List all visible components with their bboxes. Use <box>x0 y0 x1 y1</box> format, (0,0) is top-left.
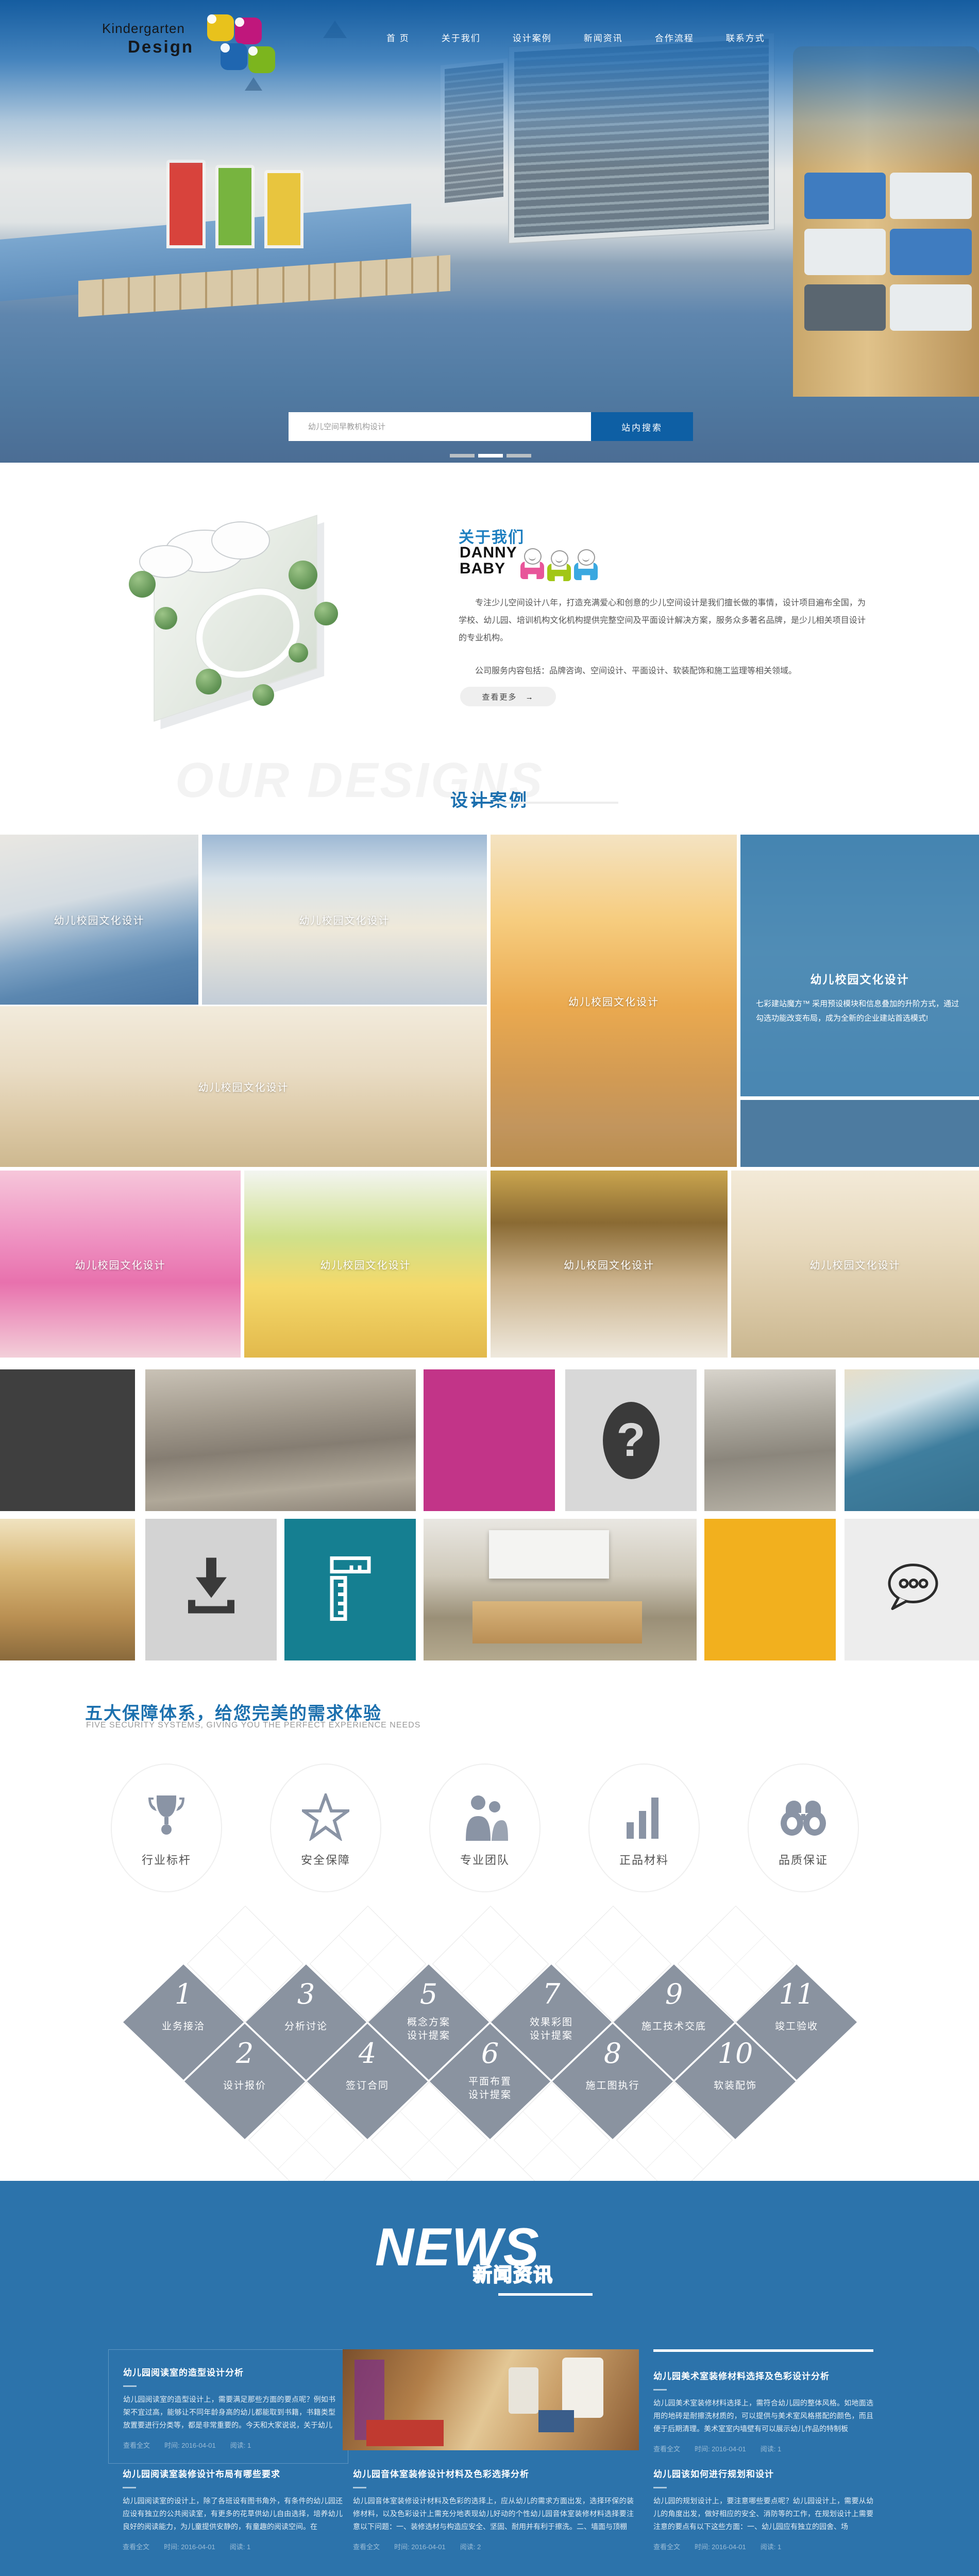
site-search: 站内搜索 <box>289 412 693 441</box>
case-caption: 幼儿校园文化设计 <box>731 1257 979 1272</box>
article-meta: 查看全文 时间: 2016-04-01 阅读: 1 <box>123 2440 335 2450</box>
cabinet-drawer <box>890 229 972 275</box>
about-paragraph-1: 专注少儿空间设计八年，打造充满爱心和创意的少儿空间设计是我们擅长做的事情，设计项… <box>459 595 866 647</box>
step-label: 效果彩图设计提案 <box>491 2016 612 2043</box>
binoculars-icon <box>779 1793 828 1843</box>
news-article-title[interactable]: 幼儿园阅读室的造型设计分析 <box>123 2365 335 2378</box>
hero-door-decoration <box>264 170 303 248</box>
mosaic-tile-sofa-photo <box>845 1369 979 1511</box>
case-tile-stage-room[interactable]: 幼儿校园文化设计 <box>491 835 737 1167</box>
article-time: 时间: 2016-04-01 <box>695 2541 746 2551</box>
news-article: 幼儿园美术室装修材料选择及色彩设计分析 幼儿园美术室装修材料选择上，需符合幼儿园… <box>653 2349 873 2453</box>
logo-text-line1: Kindergarten <box>102 21 185 37</box>
search-button[interactable]: 站内搜索 <box>591 412 693 441</box>
baby-figure-icon <box>574 549 598 581</box>
page-root: Kindergarten Design 首 页 关于我们 设计案例 新闻资讯 合… <box>0 0 979 2576</box>
main-nav: 首 页 关于我们 设计案例 新闻资讯 合作流程 联系方式 <box>386 31 902 44</box>
article-dash <box>653 2487 667 2488</box>
article-time: 时间: 2016-04-01 <box>695 2444 746 2453</box>
tree <box>196 669 222 694</box>
guarantee-label: 品质保证 <box>749 1851 858 1868</box>
case-caption: 幼儿校园文化设计 <box>244 1257 487 1272</box>
view-more-label: 查看更多 <box>482 693 517 702</box>
hero-carousel: Kindergarten Design 首 页 关于我们 设计案例 新闻资讯 合… <box>0 0 979 463</box>
nav-item-cases[interactable]: 设计案例 <box>513 31 552 44</box>
nav-item-about[interactable]: 关于我们 <box>442 31 481 44</box>
featured-title: 幼儿校园文化设计 <box>740 971 979 987</box>
campus-building <box>211 521 270 560</box>
case-caption: 幼儿校园文化设计 <box>0 912 198 927</box>
chart-icon <box>623 1793 665 1843</box>
case-tile-beige-room[interactable]: 幼儿校园文化设计 <box>731 1171 979 1358</box>
mosaic-tile-magenta <box>424 1369 555 1511</box>
guarantee-label: 行业标杆 <box>112 1851 221 1868</box>
guarantee-label: 安全保障 <box>271 1851 380 1868</box>
photo-detail <box>509 2367 538 2414</box>
case-tile-blue-floor[interactable] <box>740 1100 979 1167</box>
news-article-title[interactable]: 幼儿园音体室装修设计材料及色彩选择分析 <box>353 2467 634 2480</box>
nav-item-process[interactable]: 合作流程 <box>655 31 694 44</box>
news-section: NEWS 新闻资讯 幼儿园阅读室的造型设计分析 幼儿园阅读室的造型设计上，需要满… <box>0 2181 979 2576</box>
news-article-body: 幼儿园音体室装修设计材料及色彩的选择上，应从幼儿的需求方面出发，选择环保的装修材… <box>353 2495 634 2533</box>
site-logo[interactable]: Kindergarten Design <box>96 14 281 66</box>
case-caption: 幼儿校园文化设计 <box>491 1257 728 1272</box>
article-time: 时间: 2016-04-01 <box>394 2541 446 2551</box>
read-more-link[interactable]: 查看全文 <box>653 2444 680 2453</box>
nav-item-home[interactable]: 首 页 <box>386 31 410 44</box>
guarantee-subtitle: FIVE SECURITY SYSTEMS, GIVING YOU THE PE… <box>86 1721 420 1730</box>
cabinet-drawer <box>890 173 972 219</box>
search-input[interactable] <box>289 412 591 441</box>
mosaic-tile-reception-photo <box>0 1519 135 1660</box>
article-dash <box>353 2487 366 2488</box>
article-views: 阅读: 1 <box>230 2440 251 2450</box>
news-article: 幼儿园阅读室的造型设计分析 幼儿园阅读室的造型设计上，需要满足那些方面的要点呢？… <box>108 2349 348 2464</box>
photo-detail <box>562 2358 604 2418</box>
nav-item-news[interactable]: 新闻资讯 <box>584 31 623 44</box>
brand-text-line1: DANNY <box>460 544 517 562</box>
photo-detail <box>538 2410 574 2432</box>
title-underline <box>471 802 618 804</box>
campus-render-image <box>119 514 412 720</box>
step-label: 竣工验收 <box>736 2020 857 2033</box>
news-article: 幼儿园该如何进行规划和设计 幼儿园的规划设计上，要注意哪些要点呢？幼儿园设计上，… <box>653 2467 873 2551</box>
tree <box>314 602 338 625</box>
article-meta: 查看全文 时间: 2016-04-01 阅读: 1 <box>653 2444 873 2453</box>
hero-door-decoration <box>166 160 206 248</box>
guarantee-item-material: 正品材料 <box>588 1764 700 1892</box>
mosaic-tile-chat <box>845 1519 979 1660</box>
carousel-dot-active[interactable] <box>478 454 503 457</box>
tree <box>289 561 317 589</box>
studio-mosaic-section: ? <box>0 1365 979 1669</box>
news-article: 幼儿园音体室装修设计材料及色彩选择分析 幼儿园音体室装修设计材料及色彩的选择上，… <box>353 2467 634 2551</box>
guarantee-label: 专业团队 <box>430 1851 539 1868</box>
step-label: 分析讨论 <box>246 2020 366 2033</box>
article-time: 时间: 2016-04-01 <box>164 2440 216 2450</box>
news-article-body: 幼儿园的规划设计上，要注意哪些要点呢？幼儿园设计上，需要从幼儿的角度出发，做好相… <box>653 2495 873 2533</box>
photo-detail <box>366 2420 444 2446</box>
case-tile-reading-room[interactable]: 幼儿校园文化设计 <box>0 1006 487 1167</box>
mosaic-tile-meeting-photo <box>424 1519 697 1660</box>
article-meta: 查看全文 时间: 2016-04-01 阅读: 1 <box>123 2541 343 2551</box>
article-dash <box>123 2487 136 2488</box>
cases-title: 设计案例 <box>0 786 979 811</box>
arrow-right-icon: → <box>526 693 534 702</box>
case-tile-featured[interactable]: 幼儿校园文化设计 七彩建站魔方™ 采用预设模块和信息叠加的升阶方式，通过勾选功能… <box>740 835 979 1096</box>
mosaic-tile-question: ? <box>565 1369 697 1511</box>
nav-item-contact[interactable]: 联系方式 <box>726 31 765 44</box>
tree <box>155 607 177 630</box>
trophy-icon <box>146 1793 187 1843</box>
star-icon <box>302 1793 349 1843</box>
guarantee-item-team: 专业团队 <box>429 1764 541 1892</box>
ruler-icon <box>325 1555 376 1624</box>
mosaic-tile-office-photo <box>704 1369 836 1511</box>
baby-figure-icon <box>520 548 544 580</box>
mosaic-tile-ruler <box>284 1519 416 1660</box>
logo-text-line2: Design <box>128 37 194 57</box>
mosaic-tile-dark <box>0 1369 135 1511</box>
featured-description: 七彩建站魔方™ 采用预设模块和信息叠加的升阶方式，通过勾选功能改变布局，成为全新… <box>756 997 964 1026</box>
read-more-link[interactable]: 查看全文 <box>123 2440 150 2450</box>
danny-baby-logo: DANNY BABY <box>460 544 614 585</box>
puzzle-figure-icon <box>221 43 247 70</box>
news-title-underline <box>498 2293 593 2296</box>
case-tile-gold-ceiling-room[interactable]: 幼儿校园文化设计 <box>491 1171 728 1358</box>
speech-bubble-icon <box>881 1560 943 1619</box>
case-tile-pink-room[interactable]: 幼儿校园文化设计 <box>0 1171 241 1358</box>
mosaic-tile-yellow <box>704 1519 836 1660</box>
guarantee-item-safety: 安全保障 <box>270 1764 381 1892</box>
case-tile-corridor[interactable]: 幼儿校园文化设计 <box>0 835 198 1005</box>
article-dash <box>123 2385 137 2387</box>
mosaic-tile-office-photo <box>145 1369 416 1511</box>
read-more-link[interactable]: 查看全文 <box>353 2541 380 2551</box>
guarantee-item-benchmark: 行业标杆 <box>111 1764 222 1892</box>
mosaic-tile-download <box>145 1519 277 1660</box>
team-icon <box>462 1793 508 1843</box>
puzzle-figure-icon <box>248 46 275 73</box>
news-article: 幼儿园阅读室装修设计布局有哪些要求 幼儿园阅读室的设计上，除了各班设有图书角外，… <box>123 2467 343 2551</box>
news-article-title[interactable]: 幼儿园美术室装修材料选择及色彩设计分析 <box>653 2369 873 2382</box>
design-cases-section: OUR DESIGNS 设计案例 幼儿校园文化设计 幼儿校园文化设计 幼儿校园文… <box>0 752 979 1365</box>
step-label: 软装配饰 <box>675 2079 796 2093</box>
case-caption: 幼儿校园文化设计 <box>202 912 487 927</box>
cabinet-drawer <box>804 173 886 219</box>
news-article-body: 幼儿园阅读室的造型设计上，需要满足那些方面的要点呢？例如书架不宜过高，能够让不同… <box>123 2393 335 2432</box>
article-views: 阅读: 2 <box>460 2541 481 2551</box>
whiteboard <box>489 1530 609 1579</box>
view-more-button[interactable]: 查看更多 → <box>460 687 556 706</box>
step-label: 签订合同 <box>307 2079 428 2093</box>
step-label: 概念方案设计提案 <box>368 2016 489 2043</box>
case-caption: 幼儿校园文化设计 <box>0 1079 487 1094</box>
step-label: 施工图执行 <box>552 2079 673 2093</box>
read-more-link[interactable]: 查看全文 <box>123 2541 149 2551</box>
brand-text-line2: BABY <box>460 560 505 578</box>
meeting-table <box>472 1601 642 1644</box>
about-section: 关于我们 DANNY BABY 专注少儿空间设计八年，打造充满爱心和创意的少儿空… <box>0 463 979 752</box>
question-icon: ? <box>603 1402 660 1479</box>
news-article-title[interactable]: 幼儿园阅读室装修设计布局有哪些要求 <box>123 2467 343 2480</box>
article-time: 时间: 2016-04-01 <box>164 2541 215 2551</box>
cabinet-drawer <box>804 229 886 275</box>
baby-figure-icon <box>547 550 571 582</box>
download-icon <box>183 1557 240 1622</box>
carousel-dot[interactable] <box>507 454 531 457</box>
hero-door-decoration <box>215 165 255 248</box>
case-tile-science-room[interactable]: 幼儿校园文化设计 <box>202 835 487 1005</box>
step-label: 平面布置设计提案 <box>430 2075 550 2102</box>
case-caption: 幼儿校园文化设计 <box>491 993 737 1008</box>
news-photo[interactable] <box>343 2349 639 2450</box>
article-views: 阅读: 1 <box>761 2444 781 2453</box>
tree <box>252 684 274 706</box>
step-label: 施工技术交底 <box>614 2020 734 2033</box>
article-dash <box>653 2389 667 2391</box>
cabinet-drawer <box>890 284 972 331</box>
carousel-dot[interactable] <box>450 454 475 457</box>
cabinet-drawer <box>804 284 886 331</box>
article-views: 阅读: 1 <box>230 2541 250 2551</box>
case-tile-piano-room[interactable]: 幼儿校园文化设计 <box>244 1171 487 1358</box>
featured-overlay <box>740 835 979 1096</box>
puzzle-figure-icon <box>235 18 262 44</box>
article-meta: 查看全文 时间: 2016-04-01 阅读: 2 <box>353 2541 634 2551</box>
tree <box>289 643 308 663</box>
case-caption: 幼儿校园文化设计 <box>0 1257 241 1272</box>
tree <box>129 571 156 598</box>
step-label: 设计报价 <box>184 2079 305 2093</box>
news-title-cn: 新闻资讯 <box>473 2259 553 2287</box>
news-article-title[interactable]: 幼儿园该如何进行规划和设计 <box>653 2467 873 2480</box>
article-views: 阅读: 1 <box>761 2541 781 2551</box>
guarantee-label: 正品材料 <box>589 1851 699 1868</box>
news-article-body: 幼儿园美术室装修材料选择上，需符合幼儿园的整体风格。如地面选用的地砖是耐擦洗材质… <box>653 2397 873 2435</box>
carousel-dots <box>450 454 531 457</box>
about-paragraph-2: 公司服务内容包括：品牌咨询、空间设计、平面设计、软装配饰和施工监理等相关领域。 <box>459 663 866 680</box>
news-article-body: 幼儿园阅读室的设计上，除了各班设有图书角外，有条件的幼儿园还应设有独立的公共阅读… <box>123 2495 343 2533</box>
process-section: 1 业务接洽 3 分析讨论 5 概念方案设计提案 7 效果彩图设计提案 9 施工… <box>0 1947 979 2181</box>
guarantee-item-quality: 品质保证 <box>748 1764 859 1892</box>
article-meta: 查看全文 时间: 2016-04-01 阅读: 1 <box>653 2541 873 2551</box>
step-label: 业务接洽 <box>123 2020 244 2033</box>
read-more-link[interactable]: 查看全文 <box>653 2541 680 2551</box>
puzzle-figure-icon <box>207 14 234 41</box>
